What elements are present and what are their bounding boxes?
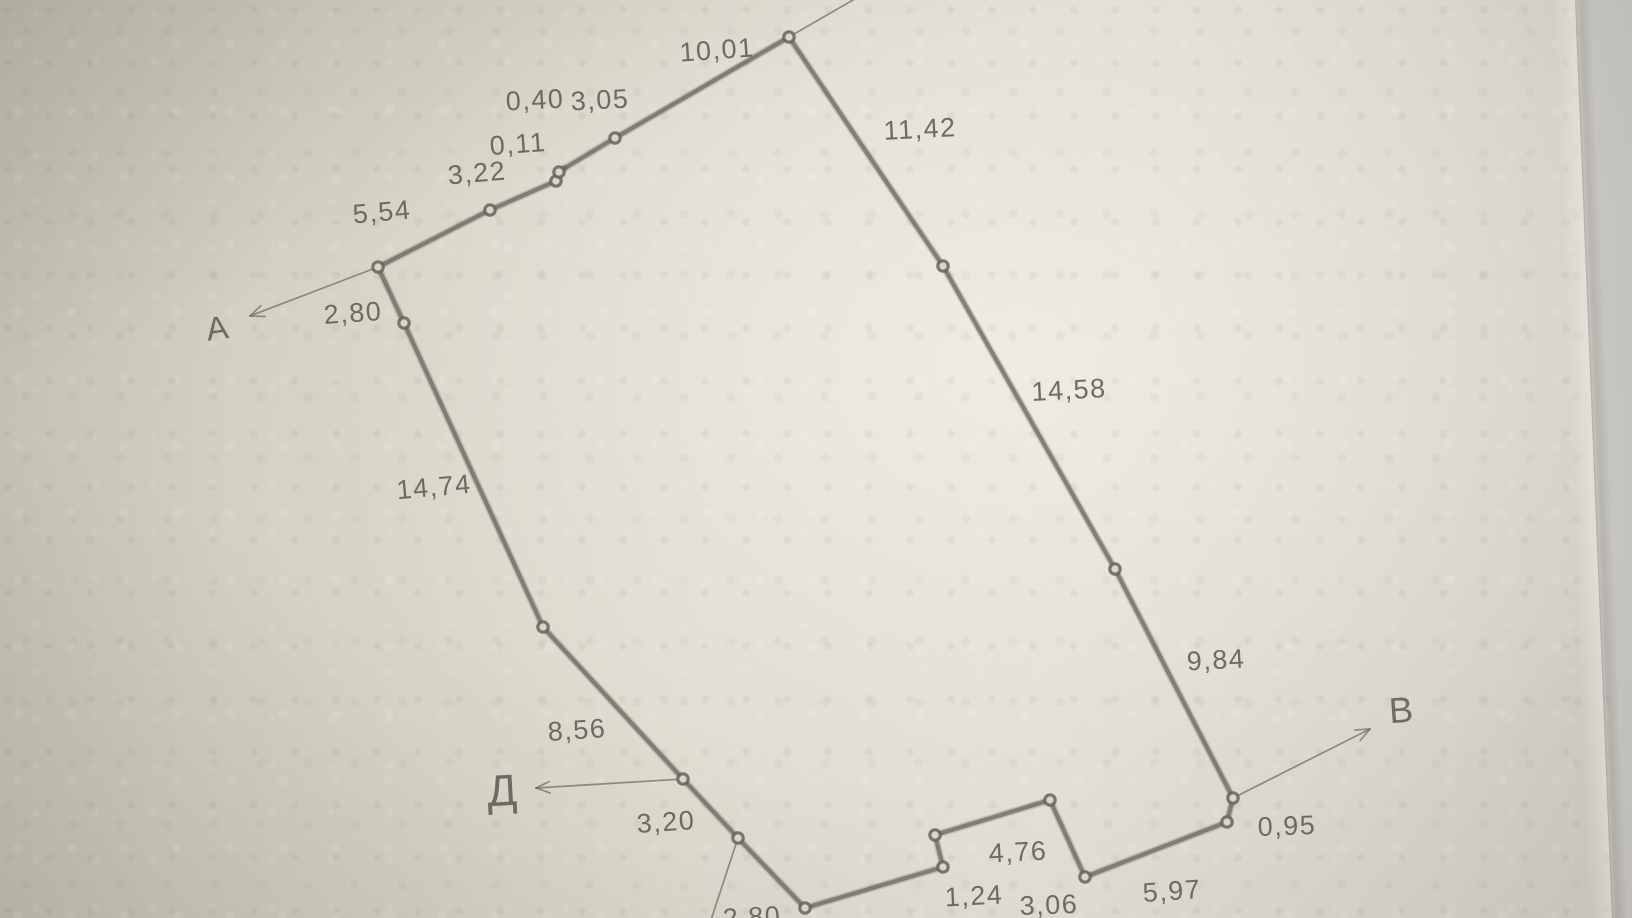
arrowhead <box>536 788 550 793</box>
sketch-svg: 5,543,220,110,403,0510,0111,4214,589,840… <box>0 0 1632 918</box>
vertex-marker <box>733 833 743 843</box>
measurement-label: 4,76 <box>988 835 1048 868</box>
vertex-marker <box>373 262 383 272</box>
vertex-marker <box>930 830 940 840</box>
vertex-marker <box>784 32 794 42</box>
vertex-marker <box>678 774 688 784</box>
measurement-label: 11,42 <box>883 112 958 146</box>
boundary-segment <box>1050 800 1085 877</box>
measurement-label: 0,40 <box>505 83 565 116</box>
boundary-segment <box>1085 822 1227 877</box>
boundary-segment <box>738 838 805 908</box>
thin-lines <box>250 0 1370 918</box>
point-label: В <box>1388 689 1415 732</box>
point-label: А <box>204 308 231 348</box>
measurement-label: 2,80 <box>722 900 782 918</box>
boundary-segment <box>805 867 943 908</box>
survey-sketch-photo: 5,543,220,110,403,0510,0111,4214,589,840… <box>0 0 1632 918</box>
vertex-marker <box>538 622 548 632</box>
vertex-marker <box>610 133 620 143</box>
extension-line <box>789 0 910 37</box>
measurement-label: 8,56 <box>547 713 608 747</box>
measurement-label: 3,05 <box>570 83 630 116</box>
measurement-label: 14,74 <box>395 469 472 505</box>
boundary-segment <box>1115 569 1233 798</box>
vertex-marker <box>1228 793 1238 803</box>
vertex-marker <box>1045 795 1055 805</box>
point-label: Д <box>486 766 518 816</box>
vertex-marker <box>554 167 564 177</box>
boundary-segment <box>565 138 615 168</box>
vertex-marker <box>1222 817 1232 827</box>
measurement-label: 14,58 <box>1031 373 1108 407</box>
vertex-marker <box>1080 872 1090 882</box>
measurement-label: 0,11 <box>489 127 548 161</box>
vertex-marker <box>1110 564 1120 574</box>
measurement-label: 5,97 <box>1142 874 1203 908</box>
vertex-marker <box>800 903 810 913</box>
direction-arrow-line <box>1233 729 1370 798</box>
boundary-segment <box>543 627 683 779</box>
arrowhead <box>1355 729 1370 730</box>
measurement-label: 2,80 <box>323 296 384 330</box>
measurement-label: 3,22 <box>447 156 508 191</box>
boundary-segment <box>943 266 1115 569</box>
arrowhead <box>250 316 265 317</box>
measurement-label: 1,24 <box>944 879 1004 912</box>
measurement-label: 0,95 <box>1257 810 1317 842</box>
vertex-marker <box>399 318 409 328</box>
direction-arrow-line <box>536 779 683 788</box>
point-labels: АВД <box>204 308 1415 816</box>
boundary-segment <box>789 37 943 266</box>
measurement-label: 3,20 <box>636 805 697 839</box>
vertex-marker <box>485 205 495 215</box>
vertex-marker <box>938 862 948 872</box>
measurement-label: 5,54 <box>352 195 413 230</box>
measurement-label: 9,84 <box>1186 643 1246 676</box>
boundary-segment <box>935 800 1050 835</box>
measurement-label: 10,01 <box>679 32 756 67</box>
vertex-marker <box>938 261 948 271</box>
measurement-label: 3,06 <box>1019 889 1079 918</box>
